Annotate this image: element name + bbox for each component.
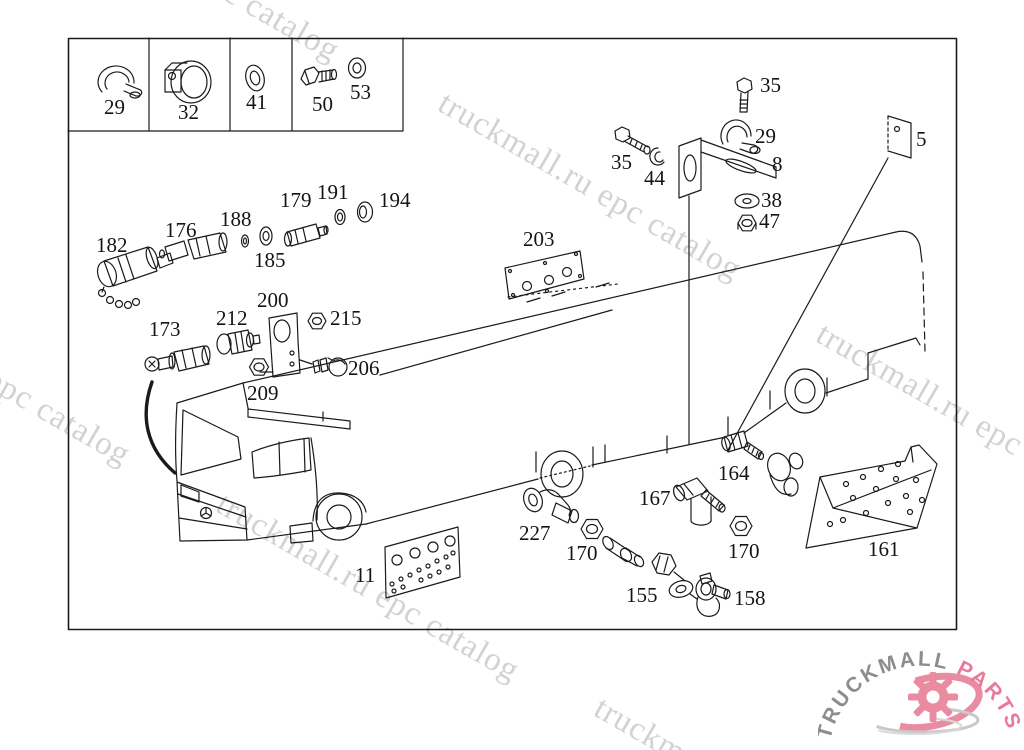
part-176-drawing xyxy=(160,233,228,261)
part-215-nut-drawing xyxy=(308,313,326,329)
sleeve-fitting-drawing xyxy=(601,535,646,569)
part-173-drawing xyxy=(145,346,210,371)
legend-part-32-clamp xyxy=(165,61,211,103)
part-29-top-clamp-drawing xyxy=(721,120,760,153)
parts-catalog-page: truckmall.ru epc catalog truckmall.ru ep… xyxy=(0,0,1024,750)
part-38-washer-drawing xyxy=(735,194,759,208)
part-11-plate-drawing xyxy=(385,527,460,598)
logo-text-pink: PARTS xyxy=(953,656,1024,733)
legend-part-29-clamp xyxy=(98,66,142,98)
part-161-panel-drawing xyxy=(806,445,937,548)
part-188-drawing xyxy=(242,235,249,247)
legend-part-50-bolt xyxy=(301,67,337,85)
truck-drawing xyxy=(176,231,926,543)
part-170-nut-left-drawing xyxy=(581,520,603,539)
part-227-elbow-drawing xyxy=(520,486,578,523)
part-170-nut-right-drawing xyxy=(730,517,752,536)
part-35-top-bolt-drawing xyxy=(737,78,752,112)
part-179-drawing xyxy=(285,224,329,246)
part-167-elbow-drawing xyxy=(672,478,725,525)
part-206-bolt-drawing xyxy=(313,358,347,376)
part-35-left-bolt-drawing xyxy=(615,127,650,154)
part-8-bracket-drawing xyxy=(679,138,776,198)
gear-icon xyxy=(908,672,958,722)
part-5-plate-drawing xyxy=(888,116,911,158)
leader-lines xyxy=(146,158,888,473)
truckmallparts-logo: TRUCKMALL PARTS xyxy=(818,636,1024,750)
part-185-drawing xyxy=(260,227,272,245)
part-212-drawing xyxy=(217,330,260,354)
legend-part-53-seal-ring xyxy=(349,58,366,78)
part-155-valve-drawing xyxy=(652,553,697,600)
part-164-fitting-drawing xyxy=(720,431,763,460)
part-203-plate-drawing xyxy=(505,251,584,299)
part-158-clevis-drawing xyxy=(696,573,730,616)
t-connector-drawing xyxy=(764,450,805,496)
legend-part-41-washer xyxy=(243,63,267,93)
part-47-nut-drawing xyxy=(738,215,756,231)
part-182-drawing xyxy=(94,246,173,309)
part-209-nut-drawing xyxy=(250,359,269,375)
part-44-washer-drawing xyxy=(650,148,664,165)
part-191-drawing xyxy=(335,210,345,225)
part-194-drawing xyxy=(358,202,373,222)
